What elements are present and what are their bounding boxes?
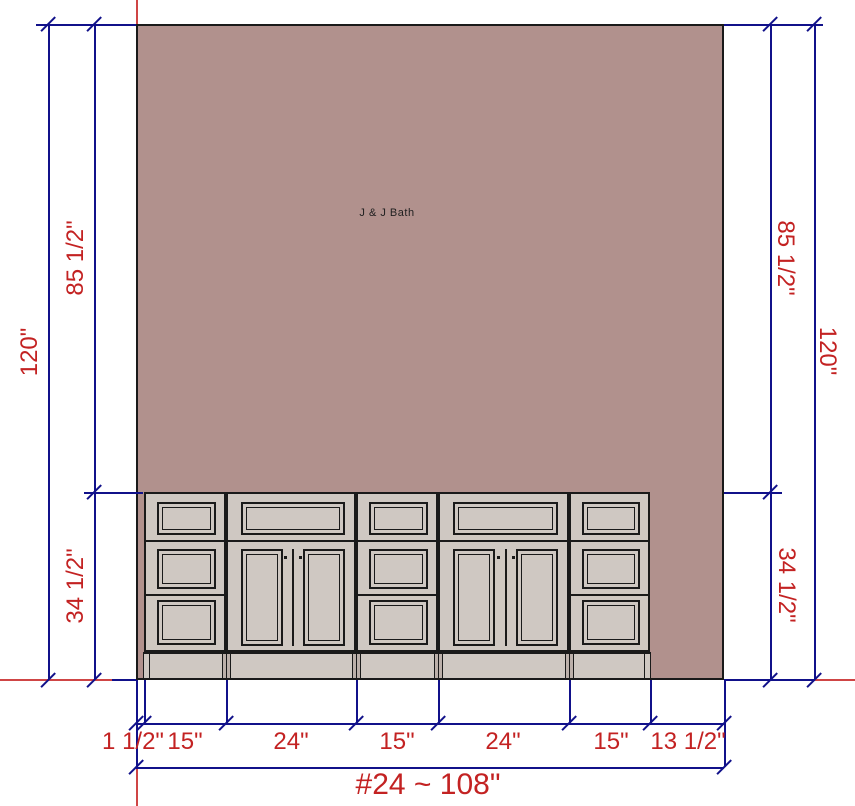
room-label: J & J Bath — [337, 207, 437, 219]
dim-line — [650, 680, 652, 723]
toe-kick-joint-line — [230, 654, 231, 678]
left-door — [453, 549, 495, 646]
dim-label-seg-5: 15" — [593, 728, 628, 756]
face-rail — [440, 540, 567, 542]
drawer-front-panel — [374, 605, 423, 640]
cabinet-section-door-cabinet[interactable] — [438, 492, 569, 652]
drawer-front-panel — [162, 605, 211, 640]
drawer-front — [157, 502, 216, 535]
dim-label-right-overall: 120" — [813, 327, 841, 376]
dim-line — [724, 492, 782, 494]
right-door — [516, 549, 558, 646]
face-rail — [571, 540, 648, 542]
drawer-front-panel — [374, 507, 423, 530]
door-center-stile — [505, 549, 507, 646]
dim-line — [94, 24, 96, 680]
toe-kick-joint-line — [222, 654, 223, 678]
drawer-front-panel — [162, 554, 211, 584]
door-knob — [284, 556, 287, 559]
dim-label-seg-4: 24" — [485, 728, 520, 756]
face-rail — [146, 594, 224, 596]
dim-label-left-overall: 120" — [16, 328, 44, 377]
dim-label-left-cabinet: 34 1/2" — [62, 548, 90, 623]
dim-line — [226, 680, 228, 723]
cabinet-section-drawer-bank[interactable] — [144, 492, 226, 652]
drawer-front — [369, 502, 428, 535]
drawer-front — [582, 502, 640, 535]
dim-label-seg-1: 15" — [167, 728, 202, 756]
toe-kick-joint-line — [352, 654, 353, 678]
face-rail — [146, 540, 224, 542]
door-knob — [512, 556, 515, 559]
toe-kick-joint-line — [442, 654, 443, 678]
toe-kick-joint-line — [565, 654, 566, 678]
face-rail — [228, 540, 354, 542]
drawer-front — [582, 549, 640, 589]
dim-line — [724, 24, 823, 26]
right-door-panel — [308, 554, 340, 641]
face-rail — [358, 594, 436, 596]
dim-line — [438, 680, 440, 723]
toe-kick-joint-line — [360, 654, 361, 678]
dim-line — [144, 680, 146, 723]
toe-kick-joint-line — [434, 654, 435, 678]
drawer-front — [582, 600, 640, 645]
toe-kick-end-line — [644, 654, 645, 678]
drawer-front-panel — [587, 507, 635, 530]
drawer-front — [157, 549, 216, 589]
toe-kick-joint-line — [573, 654, 574, 678]
cabinet-section-drawer-bank[interactable] — [569, 492, 650, 652]
dim-label-right-cabinet: 34 1/2" — [772, 547, 800, 622]
cabinet-section-drawer-bank[interactable] — [356, 492, 438, 652]
right-door — [303, 549, 345, 646]
toe-kick[interactable] — [143, 652, 651, 680]
drawer-front-panel — [162, 507, 211, 530]
drawer-front — [369, 549, 428, 589]
face-rail — [571, 594, 648, 596]
dim-label-seg-6: 13 1/2" — [650, 728, 725, 756]
dim-line — [569, 680, 571, 723]
door-center-stile — [292, 549, 294, 646]
dim-label-overall-width: #24 ~ 108" — [356, 768, 501, 802]
guide-line — [136, 0, 138, 24]
door-knob — [497, 556, 500, 559]
top-drawer-front-panel — [246, 507, 340, 530]
top-drawer-front — [241, 502, 345, 535]
dim-line — [356, 680, 358, 723]
drawer-front — [157, 600, 216, 645]
left-door-panel — [458, 554, 490, 641]
dim-label-left-upper: 85 1/2" — [62, 220, 90, 295]
toe-kick-end-line — [149, 654, 150, 678]
dim-label-right-upper: 85 1/2" — [771, 220, 799, 295]
left-door-panel — [246, 554, 278, 641]
drawer-front-panel — [587, 554, 635, 584]
dim-label-seg-0: 1 1/2" — [102, 728, 164, 756]
door-knob — [299, 556, 302, 559]
dim-line — [36, 24, 136, 26]
face-rail — [358, 540, 436, 542]
right-door-panel — [521, 554, 553, 641]
guide-line — [815, 679, 855, 681]
guide-line — [136, 769, 138, 806]
toe-kick-joint-line — [438, 654, 439, 678]
left-door — [241, 549, 283, 646]
cabinet-section-door-cabinet[interactable] — [226, 492, 356, 652]
drawer-front-panel — [374, 554, 423, 584]
dim-line — [48, 24, 50, 680]
top-drawer-front — [453, 502, 558, 535]
toe-kick-joint-line — [226, 654, 227, 678]
top-drawer-front-panel — [458, 507, 553, 530]
toe-kick-joint-line — [569, 654, 570, 678]
drawer-front — [369, 600, 428, 645]
toe-kick-joint-line — [356, 654, 357, 678]
elevation-drawing: J & J Bath 120" 85 1/2" 34 1/2" 85 1/2" … — [0, 0, 855, 806]
drawer-front-panel — [587, 605, 635, 640]
dim-label-seg-2: 24" — [273, 728, 308, 756]
dim-label-seg-3: 15" — [379, 728, 414, 756]
dim-line — [110, 679, 136, 681]
